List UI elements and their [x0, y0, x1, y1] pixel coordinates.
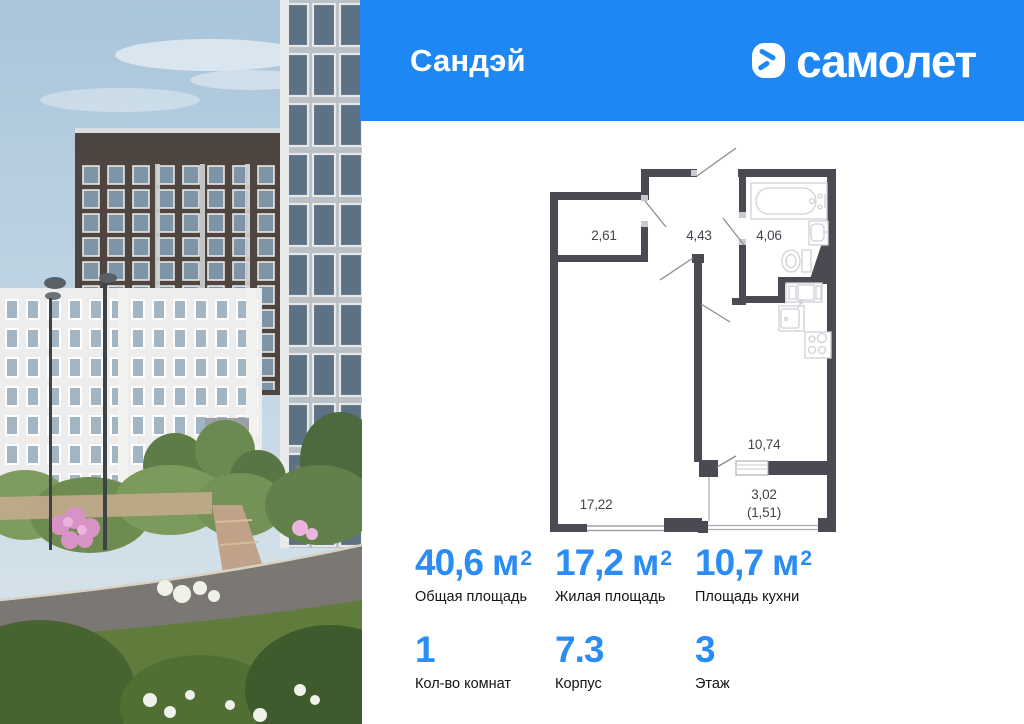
brand-logo: самолет: [752, 34, 976, 88]
brand-name: самолет: [796, 34, 976, 88]
stat-living-area: 17,2м2 Жилая площадь: [555, 540, 695, 605]
bathtub-icon: [751, 183, 827, 219]
room-area-label: 10,74: [748, 437, 781, 452]
floor-number-label: Этаж: [695, 676, 895, 692]
stat-rooms-count: 1 Кол-во комнат: [415, 631, 555, 692]
room-area-label: 4,06: [756, 228, 781, 243]
building-photo: [0, 0, 362, 724]
samolet-logo-icon: [752, 43, 785, 78]
stat-building-number: 7.3 Корпус: [555, 631, 695, 692]
listing-card: Сандэй самолет: [0, 0, 1024, 724]
kitchen-area-label: Площадь кухни: [695, 589, 895, 605]
rooms-count-value: 1: [415, 631, 555, 669]
total-area-label: Общая площадь: [415, 589, 555, 605]
building-number-value: 7.3: [555, 631, 695, 669]
room-area-label: 17,22: [580, 497, 613, 512]
stat-kitchen-area: 10,7м2 Площадь кухни: [695, 540, 895, 605]
floor-plan: 2,61 4,43 4,06 17,22 10,74 3,02 (1,51): [540, 138, 850, 540]
building-number-label: Корпус: [555, 676, 695, 692]
kitchen-area-value: 10,7м2: [695, 540, 895, 582]
washing-machine-icon: [786, 283, 822, 302]
stats-grid: 40,6м2 Общая площадь 17,2м2 Жилая площад…: [415, 540, 895, 692]
project-title: Сандэй: [410, 43, 526, 79]
floor-number-value: 3: [695, 631, 895, 669]
total-area-value: 40,6м2: [415, 540, 555, 582]
stat-floor-number: 3 Этаж: [695, 631, 895, 692]
rooms-count-label: Кол-во комнат: [415, 676, 555, 692]
kitchen-sink-icon: [779, 301, 804, 332]
bath-sink-icon: [809, 221, 828, 245]
stove-icon: [805, 332, 831, 358]
living-area-label: Жилая площадь: [555, 589, 695, 605]
floor-plan-walls: [550, 169, 836, 533]
stat-total-area: 40,6м2 Общая площадь: [415, 540, 555, 605]
room-area-label: 3,02: [751, 487, 776, 502]
room-area-label: 2,61: [591, 228, 616, 243]
room-area-label: 4,43: [686, 228, 711, 243]
vent-shaft: [809, 240, 830, 282]
header-bar: Сандэй самолет: [360, 0, 1024, 121]
room-labels: 2,61 4,43 4,06 17,22 10,74 3,02 (1,51): [580, 228, 782, 520]
toilet-icon: [782, 250, 811, 272]
room-area-label: (1,51): [747, 505, 781, 520]
living-area-value: 17,2м2: [555, 540, 695, 582]
